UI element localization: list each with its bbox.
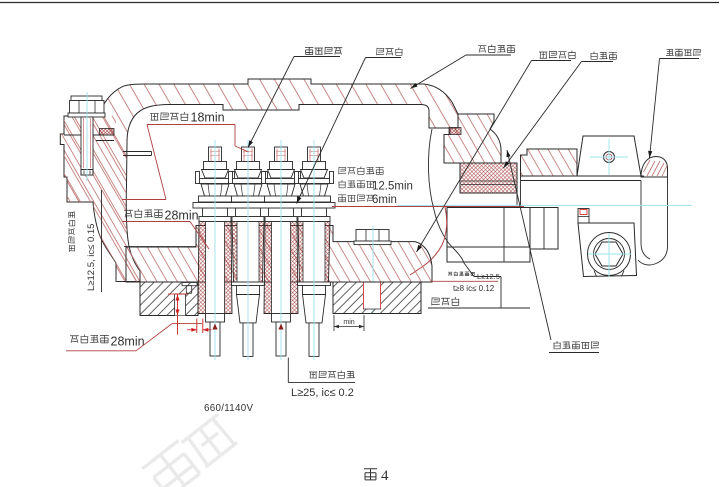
svg-text:4: 4 <box>381 468 389 484</box>
svg-text:28min: 28min <box>165 209 199 223</box>
svg-text:L≥25, ic≤ 0.2: L≥25, ic≤ 0.2 <box>291 387 354 399</box>
svg-text:min: min <box>343 319 354 326</box>
svg-text:t≥8 ic≤ 0.12: t≥8 ic≤ 0.12 <box>453 284 495 293</box>
svg-text:18min: 18min <box>191 111 225 125</box>
svg-text:L≥12.5, ic≤ 0.15: L≥12.5, ic≤ 0.15 <box>86 224 97 291</box>
svg-text:660/1140V: 660/1140V <box>204 403 254 414</box>
svg-text:12.5min: 12.5min <box>372 181 413 193</box>
svg-text:28min: 28min <box>111 335 145 349</box>
svg-text:L≥12.5: L≥12.5 <box>477 272 500 281</box>
svg-text:6min: 6min <box>372 194 397 206</box>
